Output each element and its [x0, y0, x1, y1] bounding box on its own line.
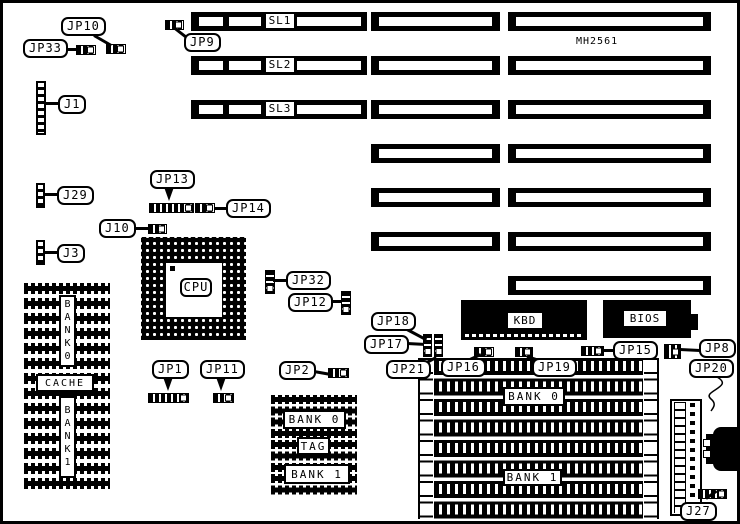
- slot-label-sl1: SL1: [265, 13, 295, 29]
- slot-window: [379, 193, 492, 202]
- callout-jp1: JP1: [152, 360, 189, 379]
- slot-sl1-left-bar: SL1: [191, 12, 367, 31]
- slot-window: [379, 61, 492, 70]
- callout-jp33: JP33: [23, 39, 68, 58]
- jp14-jumper: [195, 203, 215, 213]
- din-pin: [703, 450, 711, 458]
- cache-label: CACHE: [36, 374, 94, 392]
- slot-window: [516, 149, 703, 158]
- slot-sl3-left-bar: SL3: [191, 100, 367, 119]
- slot-label-sl3: SL3: [265, 101, 295, 117]
- simm-brackets-left: [418, 358, 433, 519]
- slot-window: [516, 105, 703, 114]
- leader-jp11: [216, 377, 226, 391]
- slot-mid-bar: [371, 144, 500, 163]
- jp1-jumper: [148, 393, 189, 403]
- slot-window: [297, 61, 361, 70]
- kbd-chip-pins: [465, 334, 583, 337]
- leader-jp17: [407, 342, 424, 346]
- slot-mid-bar: [371, 100, 500, 119]
- slot-window: [229, 105, 261, 114]
- simm-bank1-label: BANK 1: [503, 469, 562, 486]
- callout-j27: J27: [680, 502, 717, 521]
- callout-jp12: JP12: [288, 293, 333, 312]
- slot-right-bar: [508, 188, 711, 207]
- callout-jp13: JP13: [150, 170, 195, 189]
- j10-jumper: [148, 224, 167, 234]
- slot-window: [379, 237, 492, 246]
- callout-jp19: JP19: [532, 358, 577, 377]
- callout-j1: J1: [58, 95, 86, 114]
- leader-jp13: [164, 187, 174, 201]
- slot-window: [379, 149, 492, 158]
- slot-window: [516, 61, 703, 70]
- slot-right-bar: [508, 12, 711, 31]
- slot-mid-bar: [371, 188, 500, 207]
- kbd-chip-label: KBD: [507, 312, 543, 329]
- callout-jp9: JP9: [184, 33, 221, 52]
- slot-right-bar: [508, 232, 711, 251]
- power-connector-pins: [674, 402, 686, 513]
- leader-jp2: [314, 370, 329, 376]
- slot-window: [516, 193, 703, 202]
- callout-jp2: JP2: [279, 361, 316, 380]
- slot-mid-bar: [371, 232, 500, 251]
- jp18-jumper: [434, 334, 443, 357]
- leader-j29: [44, 193, 58, 196]
- leader-j3: [44, 251, 58, 254]
- din-pin: [703, 439, 711, 447]
- jp8-jumper: [664, 344, 681, 359]
- bios-chip-tab: [691, 314, 698, 330]
- slot-window: [229, 61, 261, 70]
- callout-jp11: JP11: [200, 360, 245, 379]
- slot-window: [379, 17, 492, 26]
- callout-jp15: JP15: [613, 341, 658, 360]
- slot-right-bar: [508, 276, 711, 295]
- slot-window: [379, 105, 492, 114]
- slot-window: [297, 17, 361, 26]
- jp13-jumper: [149, 203, 194, 213]
- callout-jp18: JP18: [371, 312, 416, 331]
- slot-window: [297, 105, 361, 114]
- slot-window: [199, 17, 223, 26]
- slot-mid-bar: [371, 12, 500, 31]
- slot-right-bar: [508, 144, 711, 163]
- cpu-pin1-marker: [170, 266, 175, 271]
- slot-window: [229, 17, 261, 26]
- jp33-jumper: [76, 45, 96, 55]
- cpu-label: CPU: [180, 278, 212, 297]
- j1-header: [36, 81, 46, 135]
- bios-chip-label: BIOS: [623, 310, 667, 327]
- slot-right-bar: [508, 56, 711, 75]
- leader-jp8: [680, 348, 700, 352]
- slot-right-bar: [508, 100, 711, 119]
- slot-window: [516, 17, 703, 26]
- leader-jp20: [701, 375, 740, 415]
- slot-sl2-left-bar: SL2: [191, 56, 367, 75]
- jp12-jumper: [341, 291, 351, 315]
- slot-label-sl2: SL2: [265, 57, 295, 73]
- board-part-number: MH2561: [576, 36, 618, 47]
- callout-j10: J10: [99, 219, 136, 238]
- ram-bank0-label: BANK 0: [283, 410, 346, 429]
- jp11-jumper: [213, 393, 234, 403]
- slot-mid-bar: [371, 56, 500, 75]
- callout-jp17: JP17: [364, 335, 409, 354]
- slot-window: [516, 281, 703, 290]
- slot-window: [516, 237, 703, 246]
- callout-j29: J29: [57, 186, 94, 205]
- leader-jp1: [163, 377, 173, 391]
- ram-tag-label: TAG: [297, 437, 330, 455]
- callout-jp20: JP20: [689, 359, 734, 378]
- cache-bank1-label: BANK1: [59, 396, 76, 478]
- cache-bank0-label: BANK0: [59, 295, 76, 367]
- slot-window: [199, 105, 223, 114]
- callout-jp32: JP32: [286, 271, 331, 290]
- power-connector-pins2: [690, 403, 695, 512]
- callout-j3: J3: [57, 244, 85, 263]
- ram-bank1-label: BANK 1: [284, 464, 350, 484]
- motherboard-diagram: SL1 SL2 SL3 MH2561 CPU KBD BIOS BANK0 CA…: [0, 0, 740, 524]
- callout-jp10: JP10: [61, 17, 106, 36]
- callout-jp16: JP16: [441, 358, 486, 377]
- leader-jp10: [93, 34, 112, 47]
- slot-window: [199, 61, 223, 70]
- callout-jp14: JP14: [226, 199, 271, 218]
- leader-jp32: [273, 279, 287, 282]
- jp15-jumper: [581, 346, 604, 356]
- simm-bank0-label: BANK 0: [503, 387, 565, 406]
- jp32-jumper: [265, 270, 275, 294]
- leader-j1: [45, 102, 59, 105]
- simm-sockets: [434, 358, 643, 519]
- callout-jp8: JP8: [699, 339, 736, 358]
- jp2-jumper: [328, 368, 349, 378]
- callout-jp21: JP21: [386, 360, 431, 379]
- simm-brackets-right: [644, 358, 659, 519]
